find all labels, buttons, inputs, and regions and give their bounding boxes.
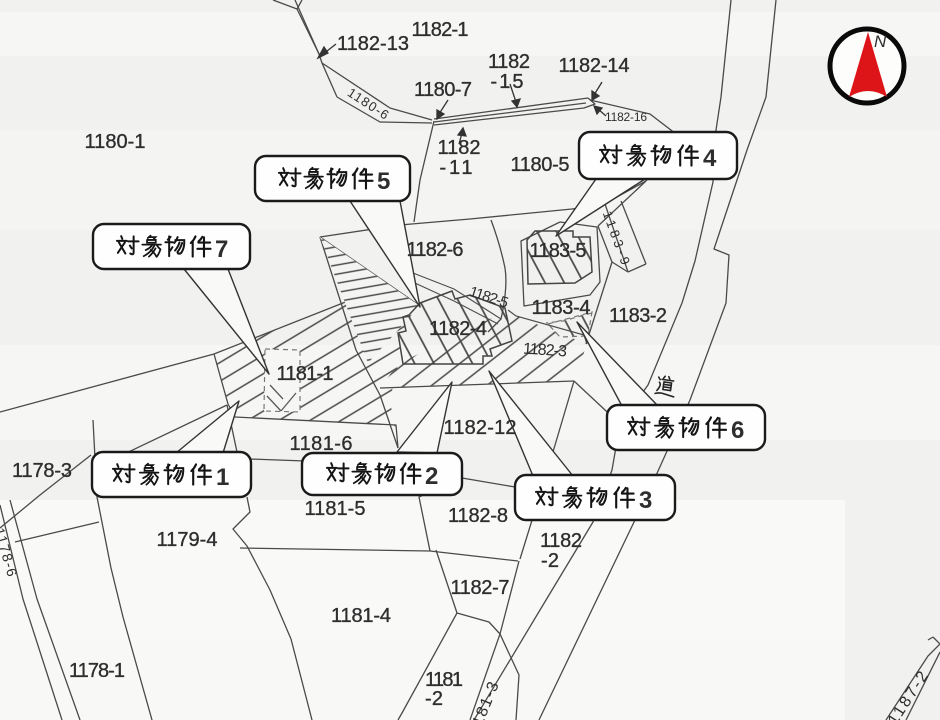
svg-text:-11: -11	[440, 157, 473, 179]
svg-text:1180-1: 1180-1	[85, 131, 146, 153]
svg-text:1179-4: 1179-4	[157, 529, 218, 551]
svg-text:1182: 1182	[438, 137, 481, 159]
svg-text:1183-4: 1183-4	[532, 297, 591, 319]
svg-text:-15: -15	[491, 71, 524, 93]
svg-text:1182-12: 1182-12	[444, 417, 517, 439]
svg-text:1181-1: 1181-1	[277, 363, 334, 385]
svg-text:1182-16: 1182-16	[605, 110, 647, 124]
svg-text:1182-4: 1182-4	[429, 318, 487, 340]
svg-text:5: 5	[377, 168, 390, 195]
svg-text:1183-5: 1183-5	[530, 240, 587, 262]
svg-text:1182-8: 1182-8	[448, 505, 508, 527]
svg-text:1182-1: 1182-1	[412, 19, 469, 41]
svg-text:1182: 1182	[488, 51, 530, 73]
svg-text:-2: -2	[425, 688, 443, 710]
svg-text:N: N	[874, 32, 887, 51]
svg-text:1183-2: 1183-2	[609, 305, 667, 327]
svg-text:1182-3: 1182-3	[522, 340, 567, 360]
svg-text:1182-7: 1182-7	[451, 577, 510, 599]
svg-text:1178-1: 1178-1	[69, 660, 125, 682]
svg-text:1182-6: 1182-6	[407, 239, 464, 261]
svg-text:1: 1	[216, 464, 229, 491]
svg-text:3: 3	[639, 487, 652, 514]
svg-text:4: 4	[703, 145, 717, 172]
svg-text:1180-7: 1180-7	[414, 79, 472, 101]
svg-text:1182: 1182	[540, 530, 582, 552]
svg-text:1182-13: 1182-13	[337, 33, 409, 55]
svg-text:1182-14: 1182-14	[559, 55, 630, 77]
svg-text:1181-4: 1181-4	[331, 605, 391, 627]
svg-text:1178-3: 1178-3	[12, 460, 72, 482]
svg-text:1180-5: 1180-5	[511, 154, 570, 176]
svg-text:-2: -2	[541, 550, 559, 572]
svg-text:1181-6: 1181-6	[290, 433, 353, 455]
svg-text:7: 7	[215, 236, 228, 263]
svg-text:1181-5: 1181-5	[305, 498, 366, 520]
svg-text:6: 6	[731, 417, 744, 444]
svg-text:2: 2	[425, 463, 438, 490]
